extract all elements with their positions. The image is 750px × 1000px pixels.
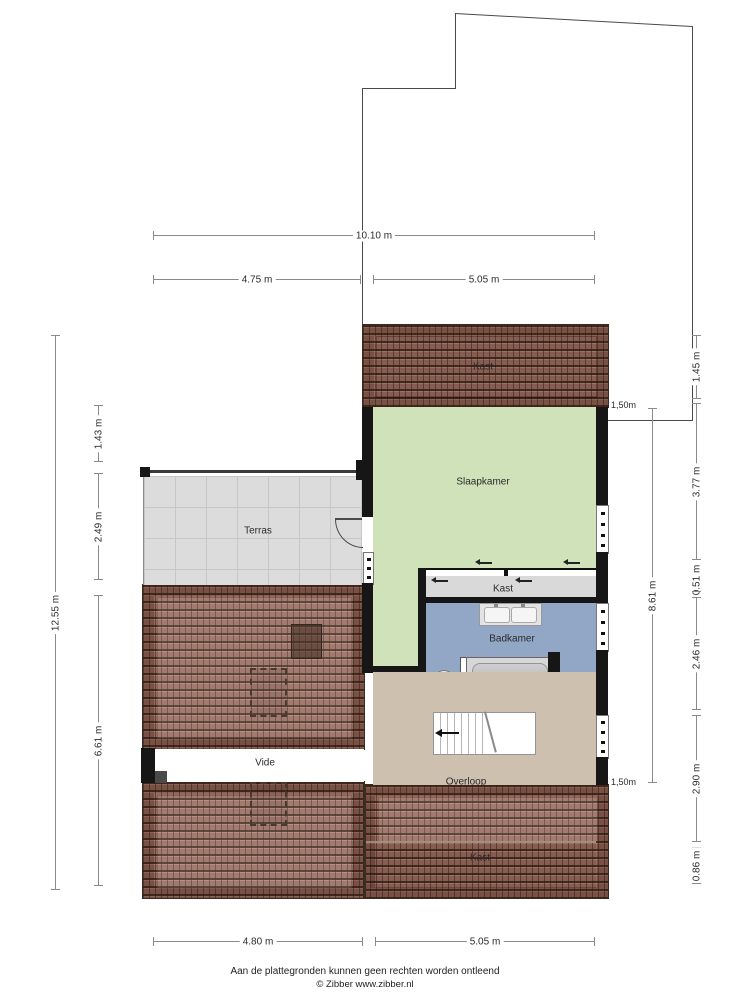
dim-right-inner: 8.61 m (652, 408, 653, 783)
slide-arrow-4 (520, 580, 532, 582)
terras-door-opening (362, 517, 373, 552)
stair-direction-line (441, 732, 459, 734)
room-label-kast-top: Kast (473, 362, 493, 373)
dim-bottom-right: 5.05 m (375, 941, 595, 942)
dim-top-left: 4.75 m (153, 279, 361, 280)
dim-right-seg4-label: 2.46 m (691, 635, 702, 672)
plot-outline-step-vert (362, 88, 363, 325)
dim-right-seg5-label: 2.90 m (691, 760, 702, 797)
vanity (479, 603, 542, 626)
sink-left (484, 607, 510, 623)
room-label-badkamer: Badkamer (489, 634, 535, 645)
dim-bottom-left: 4.80 m (153, 941, 363, 942)
dim-bottom-left-label: 4.80 m (240, 936, 277, 947)
dim-top-right: 5.05 m (373, 279, 595, 280)
plot-outline-right-horiz (608, 420, 693, 421)
dim-right-seg3-label: 0.51 m (691, 562, 702, 599)
dim-right-seg6-label: 0.86 m (691, 847, 702, 884)
dim-right-seg2: 3.77 m (696, 403, 697, 560)
dim-top-left-label: 4.75 m (239, 274, 276, 285)
dim-left-seg2: 2.49 m (98, 473, 99, 580)
wall-left-upper (362, 407, 373, 517)
room-label-overloop: Overloop (446, 777, 487, 788)
dim-right-seg4: 2.46 m (696, 597, 697, 710)
footer-credit: © Zibber www.zibber.nl (65, 979, 665, 990)
plot-outline-step-horiz (362, 88, 456, 89)
height-line-note-top: 1,50m (611, 400, 636, 410)
dim-right-seg5: 2.90 m (696, 715, 697, 842)
window-slaapkamer (596, 505, 609, 554)
stair-direction-arrow (435, 729, 442, 737)
dim-right-seg6: 0.86 m (696, 847, 697, 884)
staircase (433, 712, 536, 755)
dim-left-total: 12.55 m (55, 335, 56, 890)
roof-hatch-lower (250, 782, 287, 826)
dim-top-total-label: 10.10 m (353, 230, 395, 241)
dim-left-seg3: 6.61 m (98, 595, 99, 886)
plot-outline-top-slant (455, 13, 693, 27)
room-label-slaapkamer: Slaapkamer (456, 477, 509, 488)
room-label-kast-bottom: Kast (470, 853, 490, 864)
slide-arrow-1 (480, 562, 492, 564)
terras-corner-post (140, 467, 150, 477)
window-overloop (596, 715, 609, 759)
window-badkamer (596, 603, 609, 652)
tap-right (521, 604, 525, 607)
floorplan-canvas: 10.10 m 4.75 m 5.05 m 4.80 m 5.05 m 12.5… (0, 0, 750, 1000)
dim-left-total-label: 12.55 m (50, 591, 61, 633)
dim-bottom-right-label: 5.05 m (467, 936, 504, 947)
slaapkamer-floor-left-strip (373, 568, 418, 672)
wall-right-1 (596, 407, 608, 505)
room-label-terras: Terras (244, 526, 272, 537)
slide-arrow-2 (568, 562, 580, 564)
slide-arrow-3 (436, 580, 448, 582)
vide-post (155, 771, 167, 783)
height-line-note-bottom: 1,50m (611, 777, 636, 787)
dim-left-seg1-label: 1.43 m (93, 415, 104, 452)
wall-left-lower (362, 583, 373, 672)
sink-right (511, 607, 537, 623)
dim-right-inner-label: 8.61 m (647, 577, 658, 614)
kast-track-center (504, 568, 508, 576)
room-label-vide: Vide (255, 758, 275, 769)
terras-door-sidelight (363, 552, 374, 585)
dim-left-seg3-label: 6.61 m (93, 722, 104, 759)
chimney (291, 624, 322, 659)
dim-right-seg1-label: 1.45 m (691, 349, 702, 386)
footer-disclaimer: Aan de plattegronden kunnen geen rechten… (65, 966, 665, 977)
dim-top-right-label: 5.05 m (466, 274, 503, 285)
wall-right-3 (596, 650, 608, 715)
tap-left (494, 604, 498, 607)
wall-right-4 (596, 757, 608, 785)
roof-bottom-closet-zone (370, 843, 596, 888)
roof-right-lower-zone (378, 797, 598, 842)
dim-left-seg1: 1.43 m (98, 405, 99, 462)
dim-right-seg2-label: 3.77 m (691, 463, 702, 500)
roof-hatch-upper (250, 668, 287, 717)
wall-right-2 (596, 552, 608, 603)
terras-railing (143, 470, 362, 473)
dim-left-seg2-label: 2.49 m (93, 508, 104, 545)
vide-wall-block (141, 748, 155, 783)
room-label-kast-mid: Kast (493, 584, 513, 595)
dim-right-seg3: 0.51 m (696, 568, 697, 592)
plot-outline-left-vert (455, 13, 456, 89)
roof-divider-line (364, 785, 366, 898)
dim-right-seg1: 1.45 m (696, 335, 697, 399)
slaapkamer-floor (373, 407, 596, 568)
stair-winder-line (484, 712, 496, 753)
dim-top-total: 10.10 m (153, 235, 595, 236)
